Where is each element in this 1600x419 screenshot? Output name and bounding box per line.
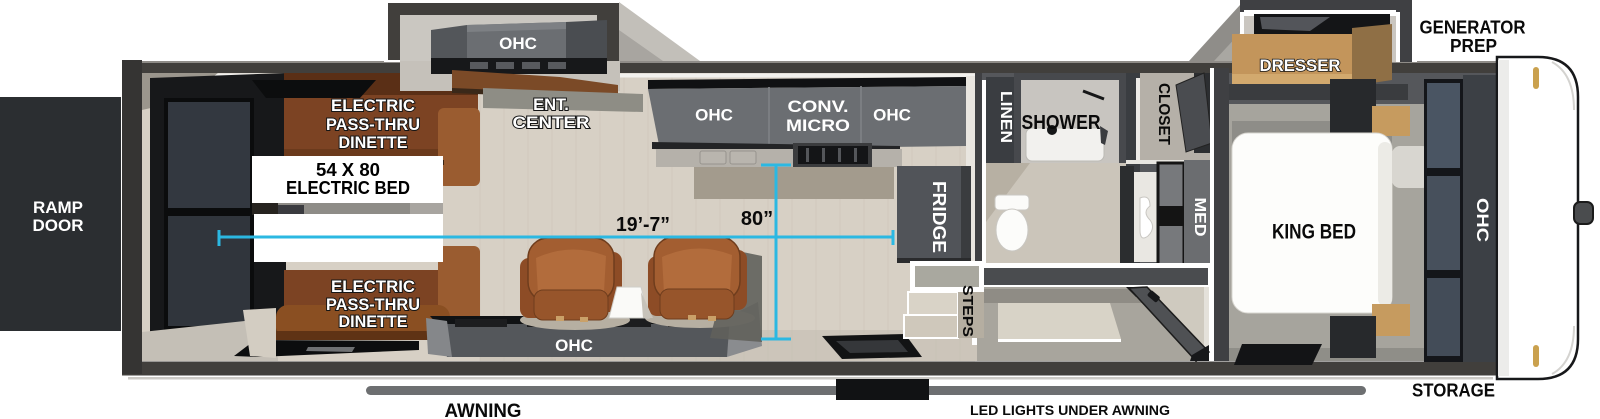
svg-text:ELECTRIC: ELECTRIC (331, 96, 415, 115)
svg-text:PASS-THRU: PASS-THRU (326, 115, 420, 134)
svg-text:OHC: OHC (873, 106, 911, 125)
svg-text:DRESSER: DRESSER (1260, 57, 1341, 75)
svg-text:LED LIGHTS UNDER AWNING: LED LIGHTS UNDER AWNING (970, 402, 1170, 418)
svg-text:CENTER: CENTER (513, 114, 590, 132)
svg-text:DINETTE: DINETTE (339, 312, 408, 331)
svg-text:STEPS: STEPS (959, 285, 976, 337)
svg-text:CLOSET: CLOSET (1155, 83, 1172, 145)
svg-text:MED: MED (1191, 198, 1208, 237)
svg-text:ENT.: ENT. (533, 96, 569, 114)
svg-text:OHC: OHC (499, 34, 537, 53)
svg-text:ELECTRIC: ELECTRIC (331, 277, 415, 296)
svg-text:19’-7”: 19’-7” (616, 214, 670, 236)
svg-text:PREP: PREP (1450, 35, 1497, 56)
svg-text:STORAGE: STORAGE (1412, 380, 1495, 401)
svg-text:CONV.: CONV. (788, 97, 849, 116)
svg-text:SHOWER: SHOWER (1022, 112, 1101, 134)
svg-text:ELECTRIC BED: ELECTRIC BED (286, 178, 410, 198)
svg-text:KING BED: KING BED (1272, 221, 1356, 244)
svg-text:MICRO: MICRO (786, 116, 850, 135)
svg-text:80”: 80” (741, 208, 773, 230)
svg-text:OHC: OHC (695, 106, 733, 125)
svg-text:FRIDGE: FRIDGE (929, 181, 949, 253)
svg-text:54 X 80: 54 X 80 (316, 160, 380, 180)
svg-text:DOOR: DOOR (33, 216, 84, 235)
svg-text:OHC: OHC (555, 336, 593, 355)
svg-text:AWNING: AWNING (445, 401, 522, 419)
svg-text:RAMP: RAMP (33, 198, 83, 217)
svg-text:DINETTE: DINETTE (339, 133, 408, 152)
svg-text:LINEN: LINEN (997, 91, 1014, 143)
svg-text:OHC: OHC (1473, 198, 1492, 242)
